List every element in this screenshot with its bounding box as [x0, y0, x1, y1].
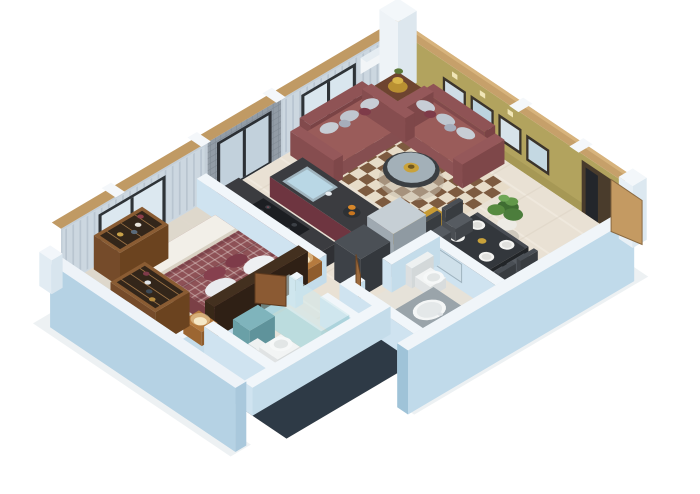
floor-plan-render [0, 0, 700, 494]
bedroom-curtain-folds [80, 220, 82, 274]
bathroom2-door [255, 273, 286, 306]
toilet-tank-front [406, 264, 412, 288]
bedroom-curtain-folds [186, 157, 188, 211]
floor-plan-3d-isometric-svg [0, 0, 700, 494]
outer-wall-end-cap [235, 382, 246, 453]
bedroom-curtain-folds [87, 216, 89, 270]
bedroom-curtain-folds [172, 165, 174, 219]
bedroom-curtain-folds [179, 161, 181, 215]
entry-door-glass-panel [586, 167, 598, 222]
outer-wall-end-cap [397, 343, 408, 414]
balcony-slider-mullion [243, 129, 246, 178]
bedroom-curtain-folds [193, 153, 195, 207]
outer-wall-corner-side [52, 254, 63, 294]
living-curtain-folds [285, 99, 287, 153]
